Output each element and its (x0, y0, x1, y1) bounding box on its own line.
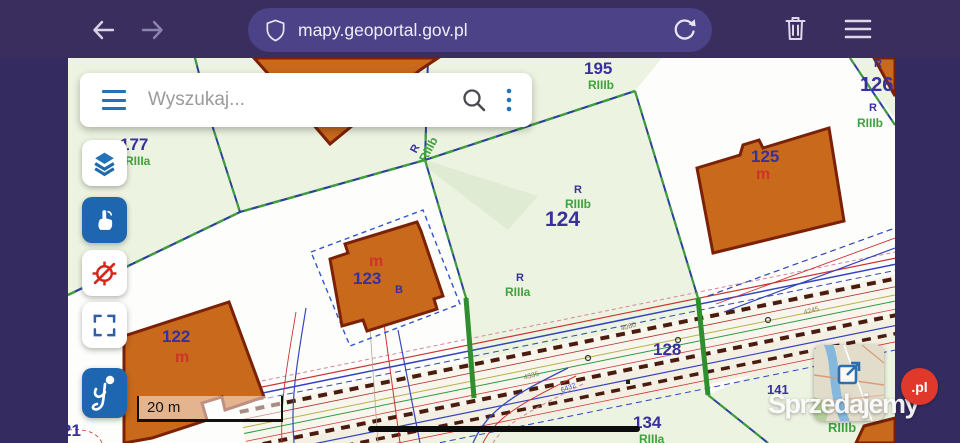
map-label-122: 122 (162, 328, 190, 345)
phone-screen: mapy.geoportal.gov.pl (0, 0, 960, 443)
map-search-bar (80, 73, 532, 127)
search-icon (460, 86, 488, 114)
fullscreen-icon (92, 313, 117, 338)
layers-icon (91, 150, 118, 177)
map-label-195: 195 (584, 60, 612, 77)
fullscreen-button[interactable] (82, 302, 127, 348)
search-options-button[interactable] (498, 86, 520, 114)
geoportal-logo-icon (88, 373, 122, 413)
home-gesture-bar[interactable] (368, 426, 640, 432)
expand-icon (836, 359, 864, 387)
reload-icon (672, 16, 698, 42)
map-label-riiia: RIIIa (505, 286, 530, 298)
overview-map[interactable] (814, 345, 884, 421)
map-label-m: m (756, 167, 770, 183)
rotation-disabled-icon (91, 260, 118, 287)
map-label-riiib: RIIIb (588, 79, 614, 91)
map-label-128: 128 (653, 341, 681, 358)
map-label-riiib: RIIIb (828, 421, 856, 434)
map-label-riiia: RIIIa (639, 433, 664, 443)
expand-overview-button[interactable] (836, 359, 864, 387)
touch-pointer-icon (91, 207, 118, 234)
geoportal-logo-button[interactable] (82, 368, 127, 418)
layers-button[interactable] (82, 140, 127, 186)
map-label-123: 123 (353, 270, 381, 287)
forward-button[interactable] (138, 16, 168, 46)
watermark-badge: .pl (901, 368, 938, 405)
browser-toolbar: mapy.geoportal.gov.pl (0, 0, 960, 58)
rotation-disabled-button[interactable] (82, 250, 127, 296)
scale-label: 20 m (139, 399, 180, 416)
map-label-21: 21 (68, 422, 81, 439)
map-label-141: 141 (767, 383, 789, 396)
map-label-124: 124 (545, 209, 580, 230)
map-label-125: 125 (751, 148, 779, 165)
scale-bar: 20 m (137, 396, 283, 422)
menu-icon (844, 17, 872, 41)
shield-icon (264, 18, 287, 43)
map-label-r: R (869, 103, 877, 114)
search-button[interactable] (460, 86, 488, 114)
map-menu-button[interactable] (102, 90, 126, 110)
map-label-r: R (516, 273, 524, 284)
map-viewport[interactable]: 177RIIIa195RIIIbR126RRIIIb125mRRIIIb124R… (68, 58, 895, 443)
trash-icon (782, 15, 809, 43)
map-label-r: R (574, 185, 582, 196)
map-label-m: m (175, 350, 189, 366)
url-text: mapy.geoportal.gov.pl (298, 20, 670, 41)
back-arrow-icon (89, 17, 117, 43)
forward-arrow-icon (139, 17, 167, 43)
back-button[interactable] (88, 16, 118, 46)
search-input[interactable] (148, 89, 460, 111)
map-label-r: R (874, 59, 882, 70)
map-label-m: m (369, 254, 383, 270)
browser-menu-button[interactable] (843, 15, 873, 45)
trash-button[interactable] (780, 15, 810, 45)
map-label-riiib: RIIIb (857, 117, 883, 129)
reload-button[interactable] (670, 15, 700, 45)
map-label-126: 126 (860, 75, 893, 95)
map-label-b: B (395, 285, 403, 296)
map-label-riiia: RIIIa (125, 155, 150, 167)
url-bar[interactable]: mapy.geoportal.gov.pl (248, 8, 712, 52)
touch-select-button[interactable] (82, 197, 127, 243)
kebab-menu-icon (505, 86, 513, 114)
